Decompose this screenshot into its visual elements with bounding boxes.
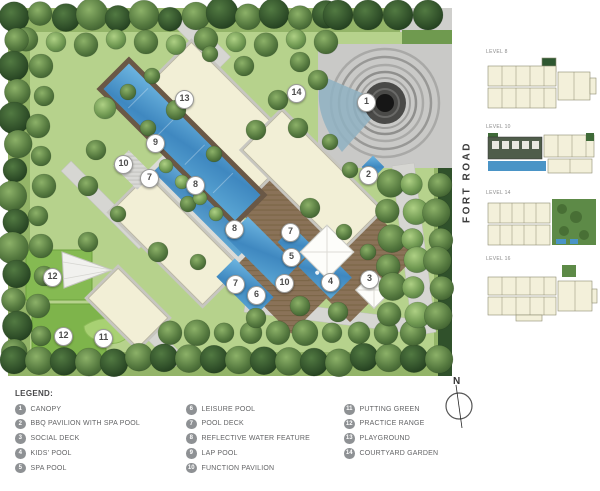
legend-column-2: 6LEISURE POOL 7POOL DECK 8REFLECTIVE WAT… [186,404,310,477]
legend-label: LEISURE POOL [202,406,256,413]
plan-marker-putting-green: 11 [94,329,113,348]
floorplan-level-10-thumbnail [486,131,598,177]
plan-marker-bbq-pavilion: 2 [359,166,378,185]
legend-item: 5SPA POOL [15,463,140,474]
plan-marker-water-feature-1: 8 [186,176,205,195]
plan-marker-function-pavilion-1: 10 [114,155,133,174]
floorplan-label-3: LEVEL 14 [486,190,511,196]
plan-marker-practice-range-2: 12 [54,327,73,346]
legend-number-badge: 12 [344,419,355,430]
floorplan-level-16-thumbnail [486,263,598,323]
floorplan-label-2: LEVEL 10 [486,124,511,130]
plan-marker-social-deck: 3 [360,270,379,289]
plan-marker-practice-range-1: 12 [43,268,62,287]
legend-number-badge: 3 [15,433,26,444]
legend-item: 9LAP POOL [186,448,310,459]
floorplan-label-1: LEVEL 8 [486,49,508,55]
legend-number-badge: 13 [344,433,355,444]
legend-item: 3SOCIAL DECK [15,433,140,444]
plan-marker-playground: 13 [175,90,194,109]
legend-item: 14COURTYARD GARDEN [344,448,438,459]
legend-item: 1CANOPY [15,404,140,415]
floorplan-label-4: LEVEL 16 [486,256,511,262]
plan-marker-lap-pool: 9 [146,134,165,153]
plan-marker-courtyard-garden: 14 [287,84,306,103]
north-compass-icon: N [436,372,482,432]
canopy-plaza [318,44,452,168]
site-plan-page: 1 2 3 4 5 6 7 7 7 8 8 9 10 10 11 12 12 1… [0,0,600,491]
legend-column-3: 11PUTTING GREEN 12PRACTICE RANGE 13PLAYG… [344,404,438,463]
legend-item: 12PRACTICE RANGE [344,419,438,430]
legend-item: 8REFLECTIVE WATER FEATURE [186,433,310,444]
legend-item: 4KIDS' POOL [15,448,140,459]
legend-title: LEGEND: [15,389,53,398]
plan-marker-function-pavilion-2: 10 [275,274,294,293]
legend-item: 2BBQ PAVILION WITH SPA POOL [15,419,140,430]
legend-label: PUTTING GREEN [360,406,420,413]
legend-item: 7POOL DECK [186,419,310,430]
legend-item: 6LEISURE POOL [186,404,310,415]
legend-item: 13PLAYGROUND [344,433,438,444]
legend-label: FUNCTION PAVILION [202,465,275,472]
legend-number-badge: 11 [344,404,355,415]
legend-number-badge: 6 [186,404,197,415]
legend-number-badge: 5 [15,463,26,474]
legend-number-badge: 9 [186,448,197,459]
legend-number-badge: 1 [15,404,26,415]
legend-item: 11PUTTING GREEN [344,404,438,415]
legend-label: REFLECTIVE WATER FEATURE [202,435,311,442]
legend-label: LAP POOL [202,450,238,457]
legend-number-badge: 10 [186,463,197,474]
legend-column-1: 1CANOPY 2BBQ PAVILION WITH SPA POOL 3SOC… [15,404,140,477]
legend-number-badge: 14 [344,448,355,459]
plan-marker-pool-deck-1: 7 [140,169,159,188]
floorplan-level-8-thumbnail [486,56,598,120]
fort-road-label: FORT ROAD [462,141,473,223]
legend-number-badge: 8 [186,433,197,444]
legend-label: BBQ PAVILION WITH SPA POOL [31,420,140,427]
legend-label: POOL DECK [202,420,244,427]
legend-label: PLAYGROUND [360,435,411,442]
legend-label: PRACTICE RANGE [360,420,425,427]
plan-marker-pool-deck-3: 7 [226,275,245,294]
plan-marker-water-feature-2: 8 [225,220,244,239]
plan-marker-kids-pool: 4 [321,273,340,292]
floorplan-level-14-thumbnail [486,197,598,253]
plan-marker-spa-pool: 5 [282,248,301,267]
plan-marker-leisure-pool: 6 [247,286,266,305]
legend-label: SPA POOL [31,465,67,472]
legend-label: CANOPY [31,406,62,413]
legend-label: SOCIAL DECK [31,435,80,442]
legend-number-badge: 7 [186,419,197,430]
legend-label: KIDS' POOL [31,450,72,457]
north-label: N [453,376,460,387]
legend-label: COURTYARD GARDEN [360,450,439,457]
legend-number-badge: 2 [15,419,26,430]
plan-marker-canopy: 1 [357,93,376,112]
legend-item: 10FUNCTION PAVILION [186,463,310,474]
plan-marker-pool-deck-2: 7 [281,223,300,242]
legend-number-badge: 4 [15,448,26,459]
